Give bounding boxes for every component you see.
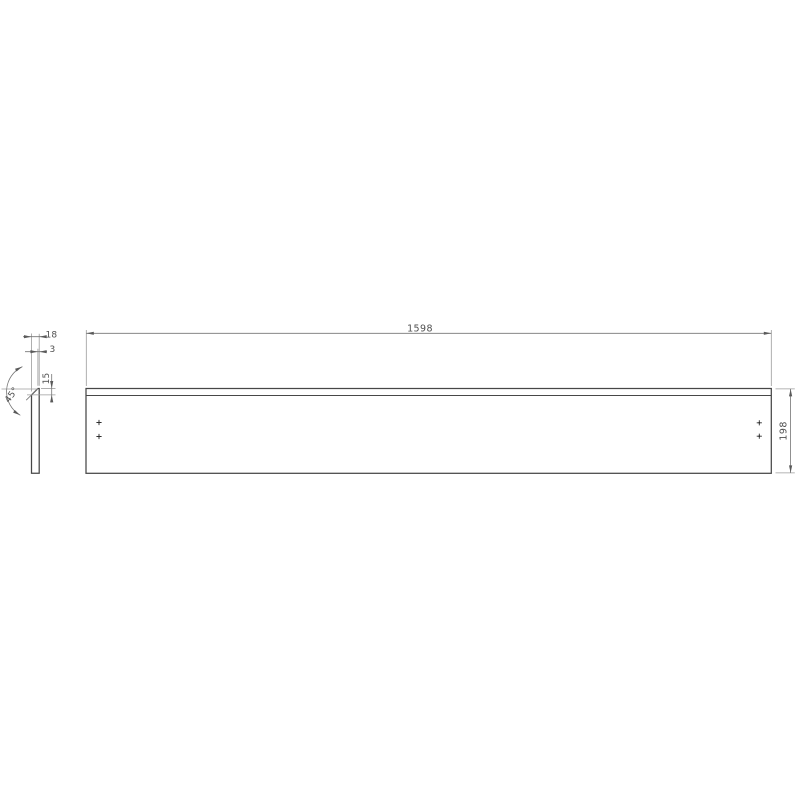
arrowhead xyxy=(789,465,792,473)
dim-height: 198 xyxy=(776,389,795,473)
dim-thickness-text: 18 xyxy=(46,330,58,340)
panel-outline xyxy=(86,389,771,474)
side-view: 18 3 15 xyxy=(2,330,58,473)
dim-top-flat-text: 3 xyxy=(50,345,56,355)
side-profile-outline xyxy=(32,389,40,474)
dim-length: 1598 xyxy=(86,324,771,387)
front-view: 1598 198 xyxy=(86,324,795,474)
arrowhead xyxy=(86,332,94,335)
arrowhead xyxy=(30,350,38,353)
arrowhead xyxy=(39,350,47,353)
drawing-sheet: 18 3 15 xyxy=(0,0,800,800)
dim-bevel-angle-text: 45° xyxy=(3,386,21,405)
arrowhead xyxy=(24,335,32,338)
arrowhead xyxy=(764,332,772,335)
arrowhead xyxy=(13,410,21,417)
arrowhead xyxy=(789,389,792,397)
drawing-canvas: 18 3 15 xyxy=(0,0,800,800)
dim-height-text: 198 xyxy=(779,421,790,440)
dim-bevel-height-text: 15 xyxy=(42,373,52,385)
arrowhead xyxy=(50,395,53,403)
arrowhead xyxy=(15,365,23,371)
dim-length-text: 1598 xyxy=(407,324,433,335)
